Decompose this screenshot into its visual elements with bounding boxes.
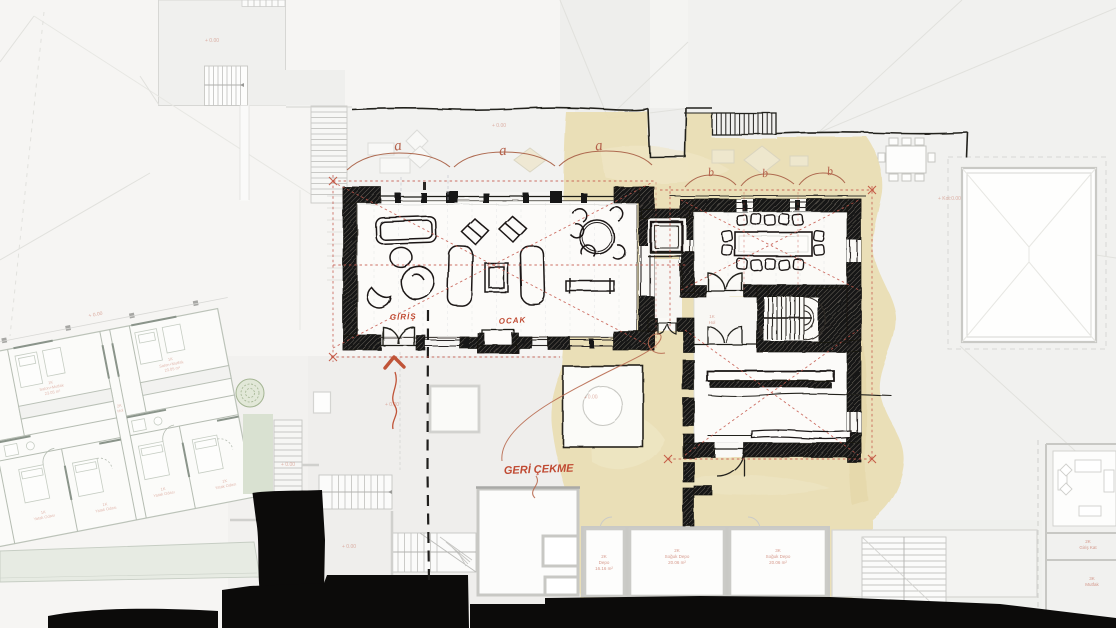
svg-text:OCAK: OCAK [499,315,527,325]
svg-text:GERİ ÇEKME: GERİ ÇEKME [504,462,575,477]
svg-text:+ 0.00: + 0.00 [281,462,295,468]
svg-text:+ 0.00: + 0.00 [342,544,356,550]
svg-text:GİRİŞ: GİRİŞ [390,312,417,322]
svg-text:Depo: Depo [599,560,610,565]
svg-text:20.06 m²: 20.06 m² [769,560,787,565]
svg-text:2K: 2K [601,554,607,559]
svg-text:16.16 m²: 16.16 m² [595,566,613,571]
svg-text:3K: 3K [1089,576,1095,581]
svg-text:2K: 2K [1085,539,1091,544]
svg-text:Soğuk Depo: Soğuk Depo [766,554,791,559]
svg-text:3K: 3K [775,548,781,553]
svg-text:+ Kot:0.00: + Kot:0.00 [938,196,961,202]
svg-text:+ 0.00: + 0.00 [385,402,399,408]
svg-text:Hol: Hol [709,320,716,325]
svg-text:1K: 1K [709,314,715,319]
svg-text:Soğuk Depo: Soğuk Depo [665,554,690,559]
svg-text:+ 0.00: + 0.00 [584,395,598,401]
svg-text:+ 0.00: + 0.00 [205,38,219,44]
svg-text:2K: 2K [674,548,680,553]
svg-text:Giriş Kat: Giriş Kat [1079,545,1097,550]
svg-text:+ 0.00: + 0.00 [492,123,506,129]
svg-text:b: b [761,166,768,180]
svg-text:20.06 m²: 20.06 m² [668,560,686,565]
svg-text:Mutfak: Mutfak [1085,582,1099,587]
